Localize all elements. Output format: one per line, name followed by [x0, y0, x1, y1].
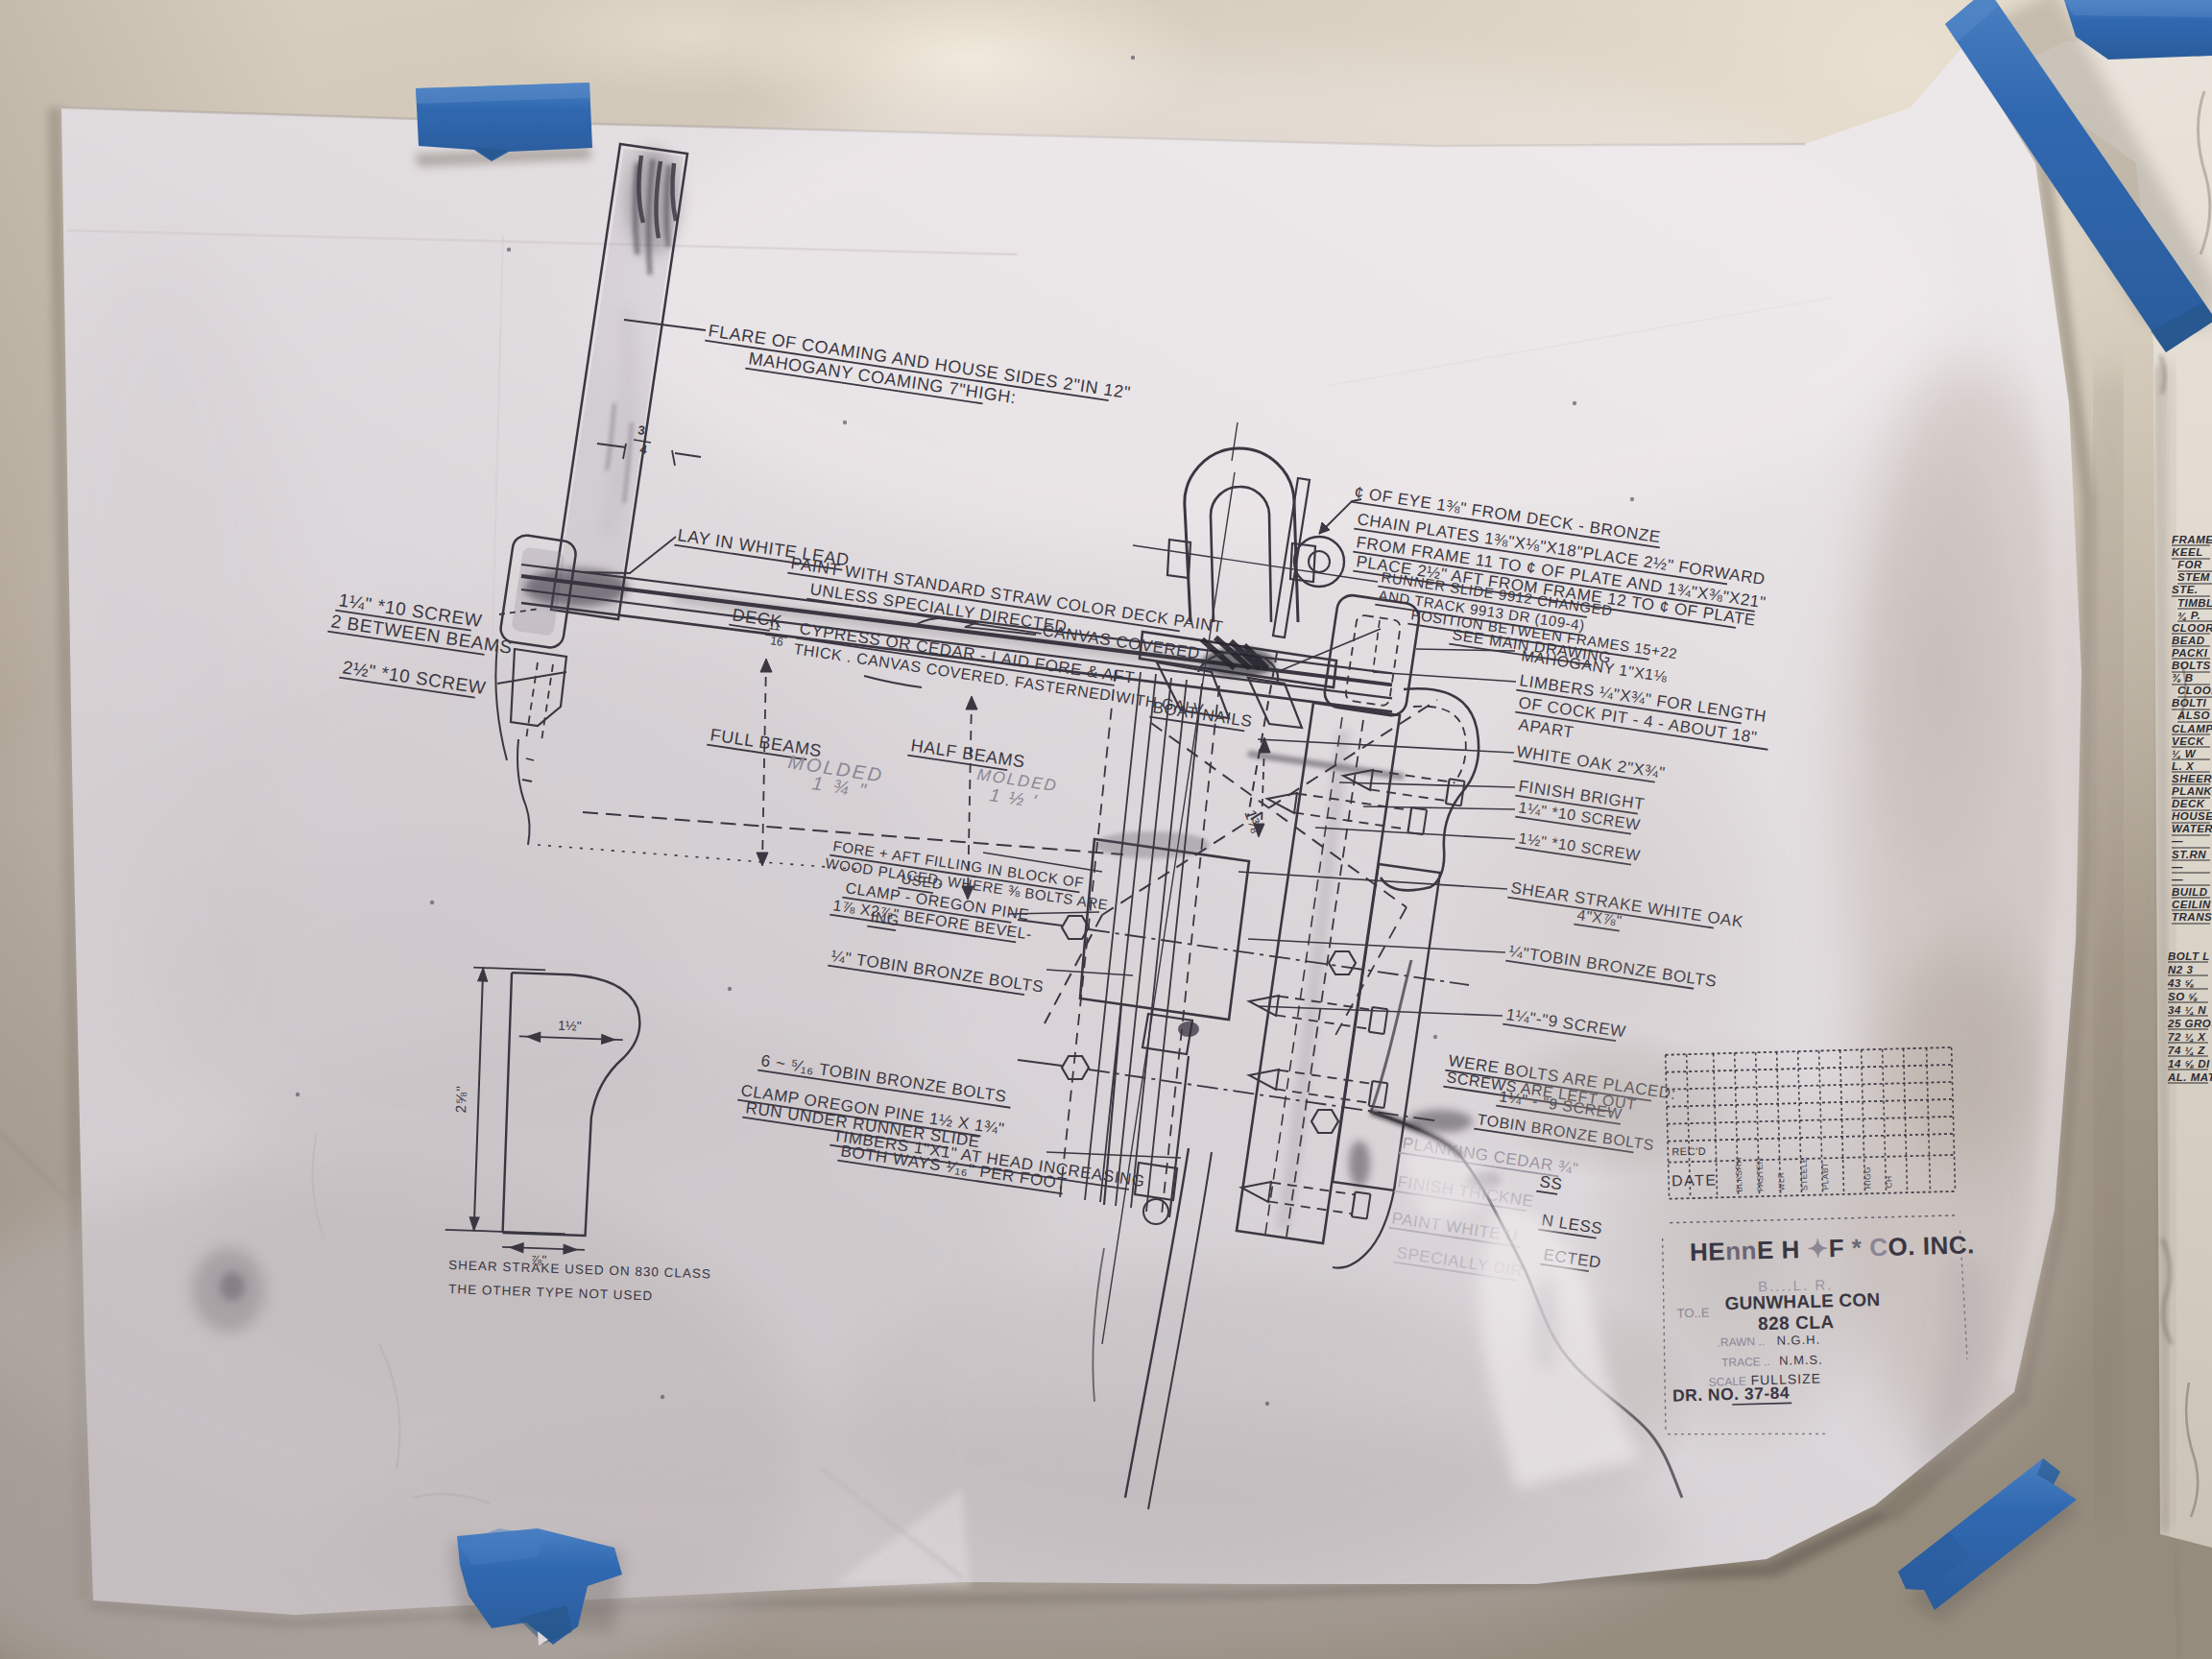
svg-text:TO..E: TO..E	[1677, 1306, 1710, 1321]
svg-text:43 ⅝: 43 ⅝	[2167, 977, 2195, 989]
svg-text:74 ¼ Z: 74 ¼ Z	[2168, 1045, 2205, 1056]
svg-text:HOUSE: HOUSE	[2172, 810, 2212, 822]
svg-text:DATE: DATE	[1671, 1171, 1718, 1189]
svg-text:SO ⅝: SO ⅝	[2168, 991, 2198, 1002]
svg-text:PACKI: PACKI	[2172, 647, 2208, 659]
svg-text:⅜ B: ⅜ B	[2172, 672, 2194, 684]
svg-text:DR. NO. 37-84: DR. NO. 37-84	[1672, 1382, 1791, 1405]
svg-text:PLABT: PLABT	[1820, 1162, 1831, 1190]
svg-text:TRANS: TRANS	[2172, 911, 2212, 923]
svg-text:1½": 1½"	[558, 1018, 582, 1034]
svg-text:ST.RN: ST.RN	[2172, 849, 2206, 860]
svg-text:RIGG: RIGG	[1863, 1166, 1873, 1190]
svg-text:—: —	[2171, 835, 2183, 847]
svg-text:N.G.H.: N.G.H.	[1776, 1333, 1820, 1348]
svg-text:PLANK: PLANK	[2172, 785, 2212, 797]
svg-text:L. X: L. X	[2172, 760, 2195, 772]
svg-text:14 ⅝ DI: 14 ⅝ DI	[2168, 1058, 2210, 1070]
svg-text:TIMBL: TIMBL	[2177, 597, 2212, 609]
svg-text:REC'D: REC'D	[1671, 1145, 1706, 1158]
svg-text:BOLT L: BOLT L	[2168, 950, 2210, 962]
svg-text:N2 3: N2 3	[2168, 964, 2193, 975]
svg-text:WATER: WATER	[2172, 823, 2212, 834]
svg-text:.RAWN ..: .RAWN ..	[1717, 1334, 1765, 1349]
svg-text:FASTEN: FASTEN	[1755, 1158, 1766, 1192]
svg-text:DECK: DECK	[2172, 798, 2205, 809]
svg-text:¼ W: ¼ W	[2172, 748, 2197, 759]
svg-text:CEILIN: CEILIN	[2172, 899, 2211, 910]
svg-text:¾ P.: ¾ P.	[2177, 610, 2200, 621]
svg-text:BOLTS: BOLTS	[2172, 660, 2211, 671]
svg-text:STEELE: STEELE	[1799, 1157, 1810, 1190]
svg-text:VECK: VECK	[2172, 735, 2204, 747]
svg-text:N.M.S.: N.M.S.	[1779, 1353, 1823, 1368]
svg-text:CLOOR: CLOOR	[2177, 685, 2212, 696]
svg-text:72 ¼ X: 72 ¼ X	[2168, 1031, 2206, 1043]
svg-text:—: —	[2171, 874, 2183, 885]
svg-text:BOLTI: BOLTI	[2172, 697, 2206, 709]
svg-text:—: —	[2171, 861, 2183, 873]
svg-text:WLR: WLR	[1776, 1171, 1787, 1190]
svg-text:AL. MATL: AL. MATL	[2167, 1071, 2212, 1083]
svg-text:34 ¼ N: 34 ¼ N	[2168, 1004, 2206, 1016]
svg-text:SHEER: SHEER	[2172, 773, 2212, 784]
svg-text:11: 11	[768, 618, 782, 634]
svg-text:CH: CH	[1884, 1175, 1893, 1188]
svg-text:STE.: STE.	[2172, 584, 2199, 595]
svg-text:KEEL: KEEL	[2172, 546, 2203, 558]
svg-text:TRACE ..: TRACE ..	[1721, 1355, 1770, 1369]
svg-text:CLOOR: CLOOR	[2172, 622, 2212, 634]
svg-text:CLAMP: CLAMP	[2172, 723, 2212, 734]
svg-text:25 GROSS: 25 GROSS	[2167, 1018, 2212, 1029]
svg-text:BUILD: BUILD	[2172, 886, 2208, 898]
svg-text:FRAME: FRAME	[2172, 534, 2212, 545]
svg-text:ALSO: ALSO	[2176, 709, 2210, 721]
svg-text:GUNWHALE CON: GUNWHALE CON	[1724, 1289, 1880, 1313]
svg-text:2⅝": 2⅝"	[452, 1085, 469, 1114]
svg-text:BEAD: BEAD	[2172, 635, 2205, 646]
svg-text:BLKSRH: BLKSRH	[1734, 1157, 1744, 1192]
svg-text:FOR: FOR	[2177, 559, 2202, 570]
svg-text:STEM: STEM	[2177, 571, 2210, 583]
svg-text:SS: SS	[1538, 1172, 1563, 1193]
svg-text:828 CLA: 828 CLA	[1758, 1311, 1835, 1334]
